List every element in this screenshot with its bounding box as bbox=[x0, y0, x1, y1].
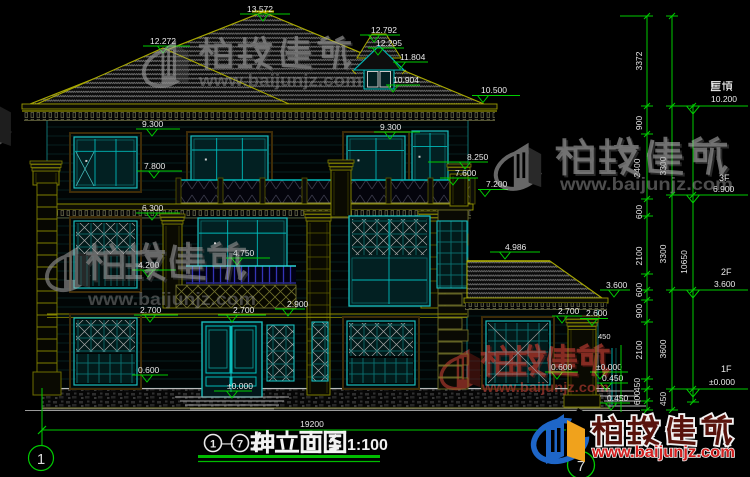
svg-text:12.792: 12.792 bbox=[371, 25, 397, 35]
svg-text:1: 1 bbox=[210, 439, 216, 451]
svg-text:10.200: 10.200 bbox=[711, 94, 737, 104]
svg-text:7.600: 7.600 bbox=[455, 168, 477, 178]
svg-text:900: 900 bbox=[634, 116, 644, 130]
svg-text:www.baijunjz.com: www.baijunjz.com bbox=[559, 174, 733, 194]
svg-text:9.300: 9.300 bbox=[142, 119, 164, 129]
svg-text:7.800: 7.800 bbox=[144, 161, 166, 171]
svg-text:8.250: 8.250 bbox=[467, 152, 489, 162]
svg-text:www.baijunjz.com: www.baijunjz.com bbox=[198, 71, 362, 90]
svg-text:450: 450 bbox=[632, 378, 642, 392]
svg-text:11.804: 11.804 bbox=[400, 52, 426, 62]
svg-text:3600: 3600 bbox=[658, 339, 668, 358]
svg-text:10.500: 10.500 bbox=[481, 85, 507, 95]
svg-text:13.572: 13.572 bbox=[247, 4, 273, 14]
svg-text:3300: 3300 bbox=[658, 244, 668, 263]
svg-text:0.600: 0.600 bbox=[138, 365, 160, 375]
svg-text:3.600: 3.600 bbox=[714, 279, 736, 289]
svg-text:0.450: 0.450 bbox=[607, 393, 629, 403]
svg-text:600: 600 bbox=[634, 205, 644, 219]
svg-text:www.baijunjz.com: www.baijunjz.com bbox=[591, 444, 735, 461]
svg-text:19200: 19200 bbox=[300, 419, 324, 429]
svg-text:450: 450 bbox=[658, 392, 668, 406]
svg-text:±0.000: ±0.000 bbox=[227, 381, 253, 391]
svg-text:3372: 3372 bbox=[634, 51, 644, 70]
svg-text:3.600: 3.600 bbox=[606, 280, 628, 290]
svg-text:10.904: 10.904 bbox=[393, 75, 419, 85]
svg-text:12.295: 12.295 bbox=[376, 38, 402, 48]
svg-text:2.600: 2.600 bbox=[586, 308, 608, 318]
svg-text:4.986: 4.986 bbox=[505, 242, 527, 252]
svg-text:1: 1 bbox=[37, 451, 45, 468]
svg-text:7: 7 bbox=[237, 439, 243, 451]
svg-text:1:100: 1:100 bbox=[347, 437, 388, 454]
svg-text:2F: 2F bbox=[721, 267, 732, 277]
svg-text:www.baijunjz.com: www.baijunjz.com bbox=[87, 289, 256, 309]
svg-text:1F: 1F bbox=[721, 364, 732, 374]
svg-text:±0.000: ±0.000 bbox=[709, 377, 735, 387]
svg-text:2.700: 2.700 bbox=[558, 306, 580, 316]
svg-text:2.900: 2.900 bbox=[287, 299, 309, 309]
svg-text:6.300: 6.300 bbox=[142, 203, 164, 213]
svg-text:9.300: 9.300 bbox=[380, 122, 402, 132]
svg-text:10650: 10650 bbox=[679, 250, 689, 274]
svg-text:2100: 2100 bbox=[634, 246, 644, 265]
svg-text:600: 600 bbox=[634, 283, 644, 297]
svg-text:900: 900 bbox=[634, 304, 644, 318]
svg-text:www.baijunjz.com: www.baijunjz.com bbox=[481, 380, 609, 395]
svg-text:450: 450 bbox=[598, 332, 611, 341]
svg-text:600: 600 bbox=[632, 391, 642, 405]
svg-text:2100: 2100 bbox=[634, 340, 644, 359]
